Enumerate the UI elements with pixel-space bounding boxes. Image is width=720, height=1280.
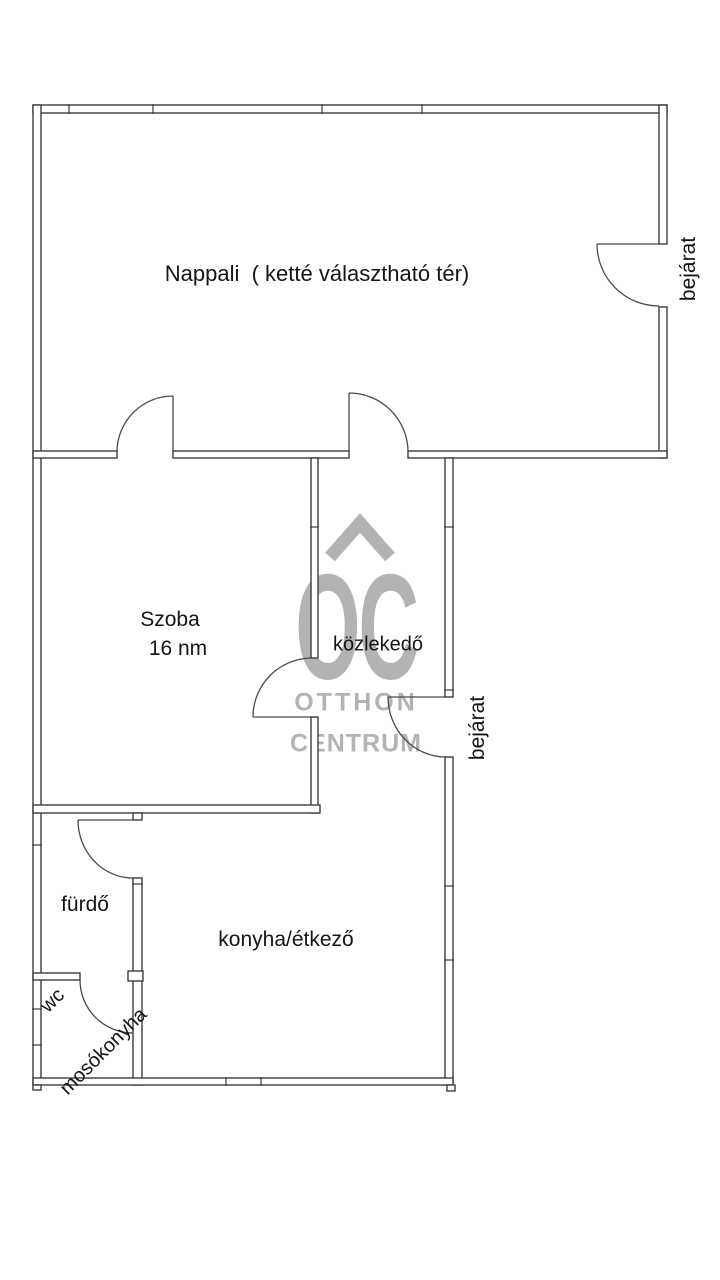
door-arc-szoba (253, 658, 311, 717)
wall-nappali-right-lower (659, 307, 667, 458)
wall-nappali-right-upper (659, 105, 667, 244)
wall-nappali-bottom-b (173, 451, 349, 458)
door-arc-szoba-nappali (117, 396, 173, 452)
wall-kozlekedo-right-lower (445, 757, 453, 1085)
door-arc-bejarat (388, 697, 445, 757)
wall-szoba-right-lower (311, 717, 318, 813)
nappali-label: Nappali ( ketté választható tér) (165, 261, 469, 287)
wall-bottom-left-foot (33, 1085, 41, 1090)
wall-top (33, 105, 667, 113)
floorplan-page: OC OTTHON CENTRUM (0, 0, 720, 1280)
wall-szoba-bottom (33, 805, 320, 813)
wall-kozlekedo-right-upper (445, 458, 453, 697)
konyha-label: konyha/étkező (218, 928, 353, 952)
wall-szoba-right-upper (311, 458, 318, 658)
door-arc-nappali-entrance (597, 244, 659, 306)
door-arc-kozlekedo-nappali (349, 393, 408, 452)
wc-label-line1: wc (4, 952, 101, 1049)
wall-furdo-bottom-jamb (128, 971, 143, 981)
furdo-label: fürdő (61, 893, 109, 917)
wall-nappali-bottom-c (408, 451, 667, 458)
kozlekedo-label: közlekedő (333, 634, 423, 657)
wall-nappali-bottom-a (33, 451, 117, 458)
door-arc-furdo (78, 820, 133, 878)
wall-bottom-right-foot (447, 1085, 455, 1091)
szoba-label: Szoba (140, 608, 200, 632)
wall-furdo-right-stub (133, 813, 142, 820)
bejarat-mid-label: bejárat (466, 696, 490, 760)
szoba-area-label: 16 nm (149, 637, 207, 661)
wc-label-line2: mosókonyha (55, 1003, 152, 1100)
bejarat-top-label: bejárat (677, 237, 701, 301)
